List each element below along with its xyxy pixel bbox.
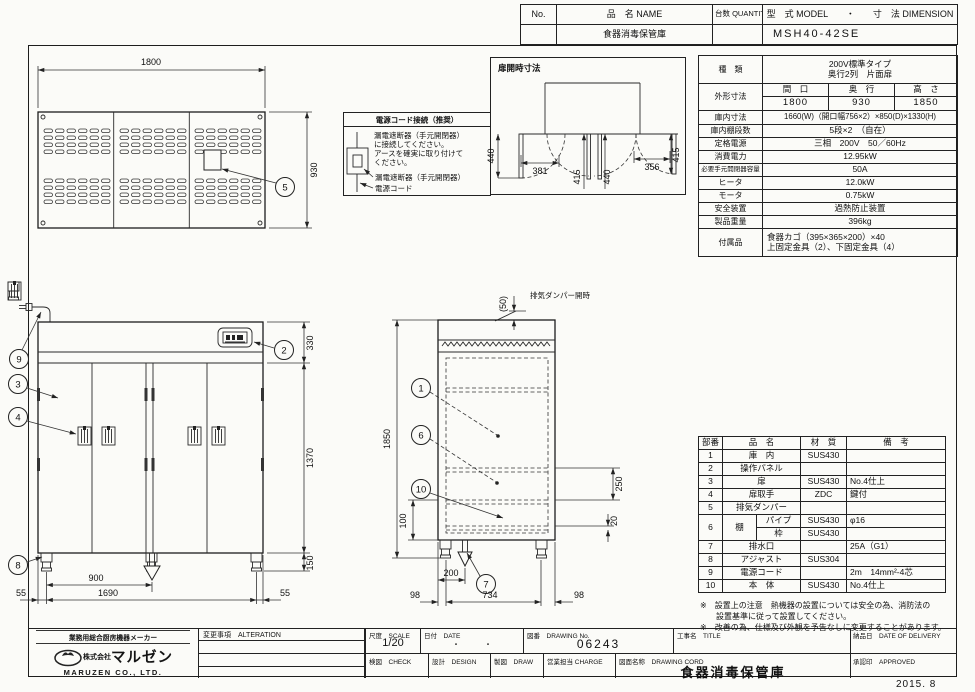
- company-prefix: 株式会社: [83, 652, 111, 662]
- dim-250: 250: [614, 476, 624, 491]
- side-drain-arrow: [458, 540, 472, 566]
- maruzen-logo-icon: [53, 647, 83, 667]
- drawing-name-cell: 図面名称 DRAWING CORD 食器消毒保管庫: [615, 653, 850, 678]
- dim-1690: 1690: [98, 588, 118, 598]
- company-block: 業務用総合厨房機器メーカー 株式会社 マルゼン MARUZEN CO., LTD…: [28, 628, 198, 678]
- power-note-line3: アースを確実に取り付けて: [374, 148, 463, 158]
- parts-row: [847, 528, 946, 541]
- callout-6: 6: [412, 426, 499, 485]
- spec-inner-label: 庫内寸法: [699, 111, 763, 125]
- parts-row: SUS430: [801, 450, 847, 463]
- dim-440-center: 440: [602, 169, 612, 184]
- parts-row: [847, 450, 946, 463]
- approved-label: 承認印 APPROVED: [853, 656, 915, 666]
- dim-50: (50): [498, 296, 508, 312]
- parts-row: 7: [699, 541, 723, 554]
- spec-shelf-label: 庫内棚段数: [699, 125, 763, 138]
- drawing-no-cell: 図番 DRAWING No. 06243: [523, 628, 673, 653]
- spec-depth-value: 930: [829, 97, 895, 111]
- parts-row: 枠: [757, 528, 801, 541]
- parts-row: No.4仕上: [847, 476, 946, 489]
- spec-height-value: 1850: [895, 97, 958, 111]
- parts-row: 3: [699, 476, 723, 489]
- door-open-title: 扉開時寸法: [497, 63, 541, 73]
- damper-open-label: 排気ダンパー開時: [530, 290, 590, 300]
- dim-415-center: 415: [572, 169, 582, 184]
- spec-weight-value: 396kg: [763, 216, 958, 229]
- spec-kind-value: 200V標準タイプ 奥行2列 片面扉: [763, 56, 958, 84]
- dim-100: 100: [398, 513, 408, 528]
- control-panel: [218, 328, 252, 347]
- approved-cell: 承認印 APPROVED: [850, 653, 957, 678]
- dim-330: 330: [305, 335, 315, 350]
- parts-row: [847, 463, 946, 476]
- spec-consumption-value: 12.95kW: [763, 151, 958, 164]
- legs: [8, 282, 262, 571]
- power-note-line4: ください。: [374, 158, 412, 167]
- parts-header-note: 備 考: [847, 437, 946, 450]
- spec-height-label: 高 さ: [895, 84, 958, 97]
- parts-row: [847, 554, 946, 567]
- parts-row: SUS304: [801, 554, 847, 567]
- callout-3: 3: [9, 375, 59, 399]
- parts-row: 電源コード: [723, 567, 801, 580]
- spec-kind-label: 種 類: [699, 56, 763, 84]
- spec-breaker-label: 必要手元開閉器容量: [699, 164, 763, 177]
- parts-row: [801, 567, 847, 580]
- callout-7: 7: [467, 553, 496, 594]
- damper-opening: [204, 150, 221, 170]
- product-name: 食器消毒保管庫: [557, 25, 713, 45]
- top-name-header: 品 名 NAME: [557, 5, 713, 25]
- charge-cell: 営業担当 CHARGE: [543, 653, 615, 678]
- parts-row: [801, 502, 847, 515]
- parts-row: SUS430: [801, 476, 847, 489]
- spec-power-value: 三相 200V 50／60Hz: [763, 138, 958, 151]
- svg-text:8: 8: [15, 561, 20, 572]
- parts-row: 扉取手: [723, 489, 801, 502]
- spec-heater-label: ヒータ: [699, 177, 763, 190]
- spec-motor-label: モータ: [699, 190, 763, 203]
- parts-row: No.4仕上: [847, 580, 946, 593]
- power-cord-box: 電源コード接続（推奨） 漏電遮断器（手元開閉器） に接続してください。 アースを…: [343, 112, 491, 196]
- design-cell: 設計 DESIGN: [428, 653, 490, 678]
- spec-width-label: 間 口: [763, 84, 829, 97]
- callout-4: 4: [9, 408, 77, 435]
- delivery-label: 納品日 DATE OF DELIVERY: [853, 630, 941, 640]
- alteration-box: 変更事項 ALTERATION: [198, 628, 365, 678]
- revision-date: 2015. 8: [896, 679, 936, 690]
- plan-width-dim: 1800: [141, 57, 161, 67]
- company-name: マルゼン: [111, 646, 173, 667]
- dim-1850: 1850: [382, 429, 392, 449]
- dim-1370: 1370: [305, 448, 315, 468]
- parts-row: SUS430: [801, 515, 847, 528]
- parts-header-name: 品 名: [723, 437, 801, 450]
- power-note-line1: 漏電遮断器（手元開閉器）: [374, 130, 464, 140]
- parts-row: 9: [699, 567, 723, 580]
- parts-row: 鍵付: [847, 489, 946, 502]
- side-legs: [440, 540, 547, 558]
- heater-element: [442, 342, 550, 346]
- svg-text:2: 2: [281, 346, 286, 357]
- spec-weight-label: 製品重量: [699, 216, 763, 229]
- dim-381: 381: [532, 166, 547, 176]
- spec-breaker-value: 50A: [763, 164, 958, 177]
- parts-row: [801, 463, 847, 476]
- breaker-caption: 漏電遮断器（手元開閉器）: [375, 172, 465, 182]
- doors: [37, 363, 264, 553]
- parts-row: [847, 502, 946, 515]
- draw-label: 製図 DRAW: [494, 656, 533, 666]
- draw-cell: 製図 DRAW: [490, 653, 543, 678]
- svg-text:10: 10: [416, 485, 427, 496]
- spec-motor-value: 0.75kW: [763, 190, 958, 203]
- company-name-en: MARUZEN CO., LTD.: [28, 668, 198, 677]
- callout-10: 10: [412, 480, 504, 519]
- parts-row: アジャスト: [723, 554, 801, 567]
- design-label: 設計 DESIGN: [432, 656, 476, 666]
- top-model-header: 型 式 MODEL ・ 寸 法 DIMENSION: [763, 5, 958, 25]
- dim-356: 356: [644, 162, 659, 172]
- svg-text:9: 9: [16, 355, 21, 366]
- note-line-2: 設置基準に従って設置してください。: [700, 611, 956, 622]
- parts-row: SUS430: [801, 580, 847, 593]
- power-box-title: 電源コード接続（推奨）: [376, 115, 459, 125]
- side-view: (50) 排気ダンパー開時 1850 1 6: [368, 268, 663, 633]
- top-title-table: No. 品 名 NAME 台数 QUANTITY 型 式 MODEL ・ 寸 法…: [520, 4, 958, 45]
- parts-row: 10: [699, 580, 723, 593]
- parts-row: 棚: [723, 515, 757, 541]
- scale-value: 1/20: [366, 637, 420, 649]
- parts-row: 2m 14mm²-4芯: [847, 567, 946, 580]
- parts-row: 25A（G1）: [847, 541, 946, 554]
- model-number: MSH40-42SE: [763, 25, 958, 45]
- spec-safety-label: 安全装置: [699, 203, 763, 216]
- inner-compartment: [446, 358, 548, 533]
- dim-150: 150: [305, 555, 315, 570]
- power-cord: [19, 304, 50, 323]
- check-cell: 検図 CHECK: [365, 653, 428, 678]
- alteration-row: [199, 654, 364, 667]
- parts-row: ZDC: [801, 489, 847, 502]
- parts-row: φ16: [847, 515, 946, 528]
- note-line-1: ※ 設置上の注意 熱機器の設置については安全の為、消防法の: [700, 600, 956, 611]
- dim-900: 900: [88, 573, 103, 583]
- svg-text:4: 4: [15, 413, 20, 424]
- parts-row: [801, 541, 847, 554]
- parts-row: 排水口: [723, 541, 801, 554]
- callout-9: 9: [10, 312, 42, 369]
- spec-consumption-label: 消費電力: [699, 151, 763, 164]
- spec-accessory-value: 食器カゴ（395×365×200）×40 上固定金具（2）、下固定金具（4）: [763, 229, 958, 257]
- spec-kind-line2: 奥行2列 片面扉: [765, 70, 955, 80]
- parts-row: 8: [699, 554, 723, 567]
- dim-98-left: 98: [410, 590, 420, 600]
- cord-caption: 電源コード: [375, 184, 413, 193]
- parts-header-no: 部番: [699, 437, 723, 450]
- callout-8: 8: [9, 556, 43, 575]
- top-qty-header: 台数 QUANTITY: [713, 5, 763, 25]
- dim-440-left: 440: [486, 148, 496, 163]
- parts-row: 1: [699, 450, 723, 463]
- door-open-view: 扉開時寸法 440 381 415 440 356 415: [488, 55, 688, 197]
- dim-415-right: 415: [671, 147, 681, 162]
- shelves: [446, 388, 548, 530]
- dim-20: 20: [609, 516, 619, 526]
- check-label: 検図 CHECK: [369, 656, 411, 666]
- parts-row: 排気ダンパー: [723, 502, 801, 515]
- project-title-label: 工事名 TITLE: [677, 630, 721, 640]
- drawing-sheet: No. 品 名 NAME 台数 QUANTITY 型 式 MODEL ・ 寸 法…: [0, 0, 975, 692]
- date-value: ・ ・: [421, 639, 523, 650]
- date-cell: 日付 DATE ・ ・: [420, 628, 523, 653]
- charge-label: 営業担当 CHARGE: [547, 656, 603, 666]
- svg-text:5: 5: [282, 183, 287, 194]
- parts-row: 4: [699, 489, 723, 502]
- dim-55-left: 55: [16, 588, 26, 598]
- svg-text:1: 1: [418, 384, 423, 395]
- spec-shelf-value: 5段×2 （自在）: [763, 125, 958, 138]
- dim-55-right: 55: [280, 588, 290, 598]
- spec-accessory-line2: 上固定金具（2）、下固定金具（4）: [767, 243, 955, 253]
- top-qty-value: [713, 25, 763, 45]
- plan-depth-dim: 930: [309, 162, 319, 177]
- spec-inner-value: 1660(W)（開口幅756×2）×850(D)×1330(H): [763, 111, 958, 125]
- drawing-no-value: 06243: [524, 637, 673, 651]
- front-view: 9 2: [8, 282, 358, 627]
- spec-depth-label: 奥 行: [829, 84, 895, 97]
- alteration-label: 変更事項 ALTERATION: [199, 628, 364, 641]
- drawing-name-value: 食器消毒保管庫: [616, 662, 850, 681]
- spec-table: 種 類 200V標準タイプ 奥行2列 片面扉 外形寸法 間 口 奥 行 高 さ …: [698, 55, 958, 257]
- louver-slots: [44, 129, 261, 204]
- spec-power-label: 定格電源: [699, 138, 763, 151]
- dim-200: 200: [443, 568, 458, 578]
- spec-outer-label: 外形寸法: [699, 84, 763, 111]
- svg-text:6: 6: [418, 431, 423, 442]
- spec-heater-value: 12.0kW: [763, 177, 958, 190]
- parts-table: 部番 品 名 材 質 備 考 1庫 内SUS430 2操作パネル 3扉SUS43…: [698, 436, 946, 593]
- dim-734: 734: [482, 590, 497, 600]
- alteration-row: [199, 641, 364, 654]
- power-note-line2: に接続してください。: [374, 139, 449, 149]
- spec-width-value: 1800: [763, 97, 829, 111]
- parts-row: 6: [699, 515, 723, 541]
- parts-row: SUS430: [801, 528, 847, 541]
- project-title-cell: 工事名 TITLE: [673, 628, 850, 653]
- top-no-value: [521, 25, 557, 45]
- top-no-header: No.: [521, 5, 557, 25]
- delivery-cell: 納品日 DATE OF DELIVERY: [850, 628, 957, 653]
- parts-row: 5: [699, 502, 723, 515]
- dim-98-right: 98: [574, 590, 584, 600]
- alteration-row: [199, 667, 364, 678]
- spec-accessory-label: 付属品: [699, 229, 763, 257]
- spec-safety-value: 過熱防止装置: [763, 203, 958, 216]
- svg-text:3: 3: [15, 380, 20, 391]
- scale-cell: 尺度 SCALE 1/20: [365, 628, 420, 653]
- callout-2: 2: [254, 341, 294, 360]
- parts-row: 扉: [723, 476, 801, 489]
- parts-row: 庫 内: [723, 450, 801, 463]
- parts-row: 本 体: [723, 580, 801, 593]
- svg-text:7: 7: [483, 580, 488, 591]
- parts-row: パイプ: [757, 515, 801, 528]
- maker-tagline: 業務用総合厨房機器メーカー: [36, 630, 190, 644]
- plan-view: 1800 5 930: [28, 48, 358, 280]
- parts-row: 2: [699, 463, 723, 476]
- callout-5: 5: [276, 178, 295, 197]
- parts-header-material: 材 質: [801, 437, 847, 450]
- parts-row: 操作パネル: [723, 463, 801, 476]
